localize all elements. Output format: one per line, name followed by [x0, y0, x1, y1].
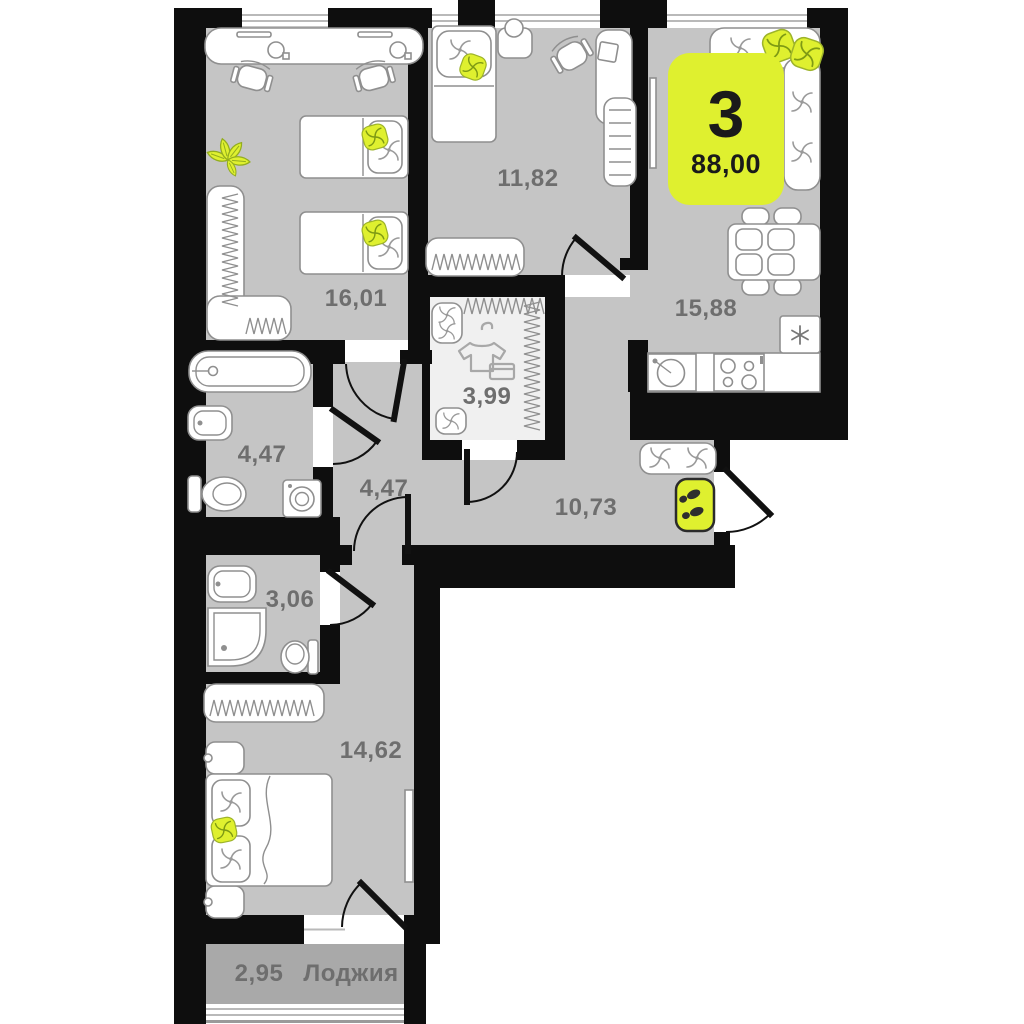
- badge-rooms-count: 3: [708, 77, 745, 151]
- facade-pier-right: [600, 0, 667, 28]
- apartment-badge: 3 88,00: [668, 53, 784, 205]
- loggia-glazing: [206, 1004, 404, 1023]
- bench: [640, 443, 716, 474]
- area-label-bedroom-top-left: 16,01: [325, 285, 388, 312]
- lamp: [505, 19, 523, 37]
- name-label-loggia: Лоджия: [303, 960, 398, 987]
- wardrobe: [426, 238, 524, 276]
- monitor: [358, 32, 392, 37]
- stove-icon: [714, 354, 764, 391]
- badge-total-area: 88,00: [691, 149, 761, 179]
- door-entrance: [726, 470, 770, 532]
- area-label-corridor: 4,47: [360, 475, 409, 502]
- single-bed: [432, 26, 496, 142]
- shelf-rack: [604, 98, 636, 186]
- washing-machine: [283, 480, 321, 517]
- washbasin: [188, 406, 232, 440]
- double-bed: [206, 774, 332, 886]
- area-label-loggia: 2,95: [235, 960, 284, 987]
- radiator: [405, 790, 413, 882]
- single-bed: [300, 212, 408, 274]
- pouf: [436, 408, 466, 434]
- wardrobe: [204, 684, 324, 722]
- facade-pier-left: [458, 0, 495, 28]
- entrance-mat: [676, 479, 714, 531]
- window-living-room: [667, 10, 807, 26]
- single-bed: [300, 116, 408, 178]
- window-sliver: [432, 10, 458, 26]
- floor-plan-svg: 16,01 11,82 15,88 4,47 3,99 4,47 10,73 3…: [0, 0, 1024, 1024]
- area-label-bedroom-top-middle: 11,82: [497, 165, 558, 192]
- area-label-bedroom-bottom: 14,62: [340, 737, 403, 764]
- area-label-hallway: 10,73: [555, 494, 618, 521]
- radiator: [650, 78, 656, 168]
- area-label-shower-wc: 3,06: [266, 586, 315, 613]
- fridge: [780, 316, 820, 353]
- area-label-bathroom: 4,47: [238, 441, 287, 468]
- floor-plan-page: 16,01 11,82 15,88 4,47 3,99 4,47 10,73 3…: [0, 0, 1024, 1024]
- washbasin: [208, 566, 256, 602]
- window-bedroom-top-left: [242, 10, 328, 26]
- toilet: [188, 476, 246, 512]
- area-label-dressing-room: 3,99: [463, 383, 512, 410]
- monitor: [237, 32, 271, 37]
- laptop: [598, 42, 619, 63]
- bathtub: [189, 351, 311, 392]
- kitchen-counter: [648, 353, 820, 392]
- window-balcony-sidelight: [304, 923, 345, 936]
- pouf: [432, 303, 462, 343]
- shower: [208, 608, 266, 666]
- area-label-kitchen-living: 15,88: [675, 295, 738, 322]
- toilet: [281, 640, 318, 674]
